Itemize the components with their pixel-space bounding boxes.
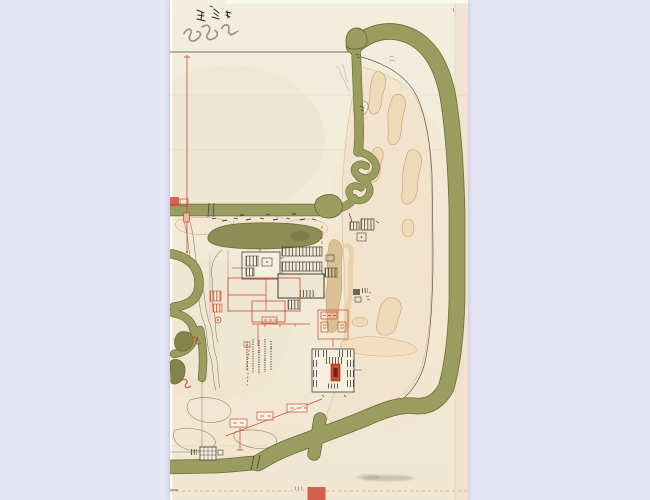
calligraphy-gray-note <box>183 21 239 43</box>
red-stamp <box>308 487 326 500</box>
page-number: 111 <box>294 487 304 492</box>
map-drawing <box>170 0 468 500</box>
scanned-map-sheet: 111 <box>170 0 468 500</box>
viewer-canvas: 111 <box>0 0 650 500</box>
bottom-margin <box>170 475 468 500</box>
calligraphy-title <box>197 6 231 21</box>
